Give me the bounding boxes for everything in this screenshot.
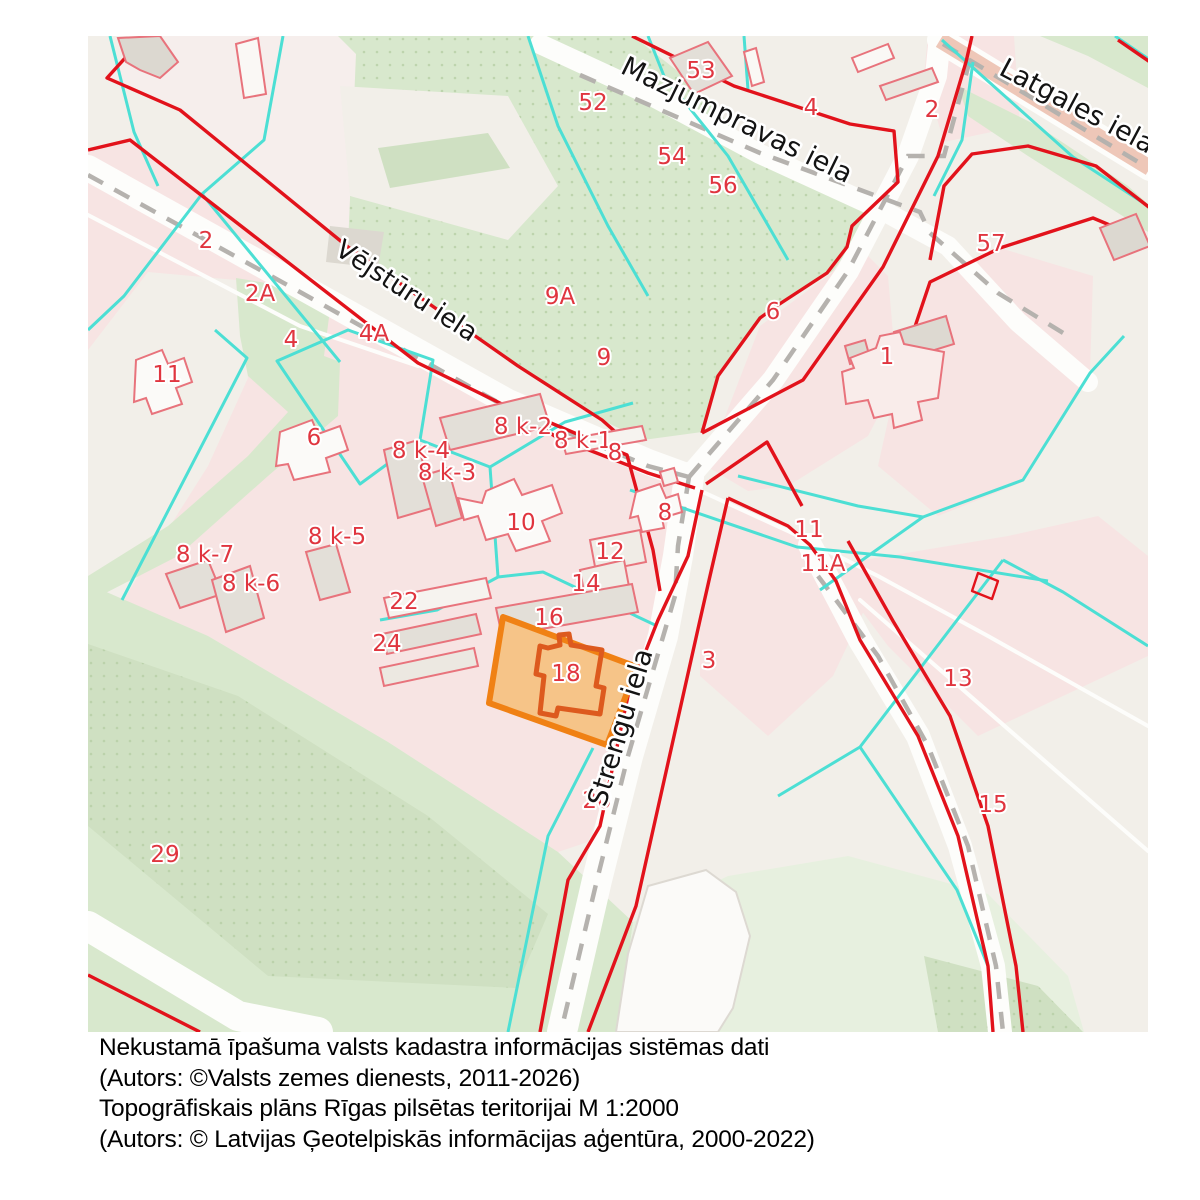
parcel-label-11: 11 bbox=[152, 362, 181, 388]
parcel-label-8k-5: 8 k-5 bbox=[308, 524, 366, 550]
parcel-label-11A: 11A bbox=[800, 551, 845, 577]
parcel-label-8k-6: 8 k-6 bbox=[222, 571, 280, 597]
cadastre-map: 53525456425722A44A119A96618 k-28 k-188 k… bbox=[88, 36, 1148, 1032]
parcel-label-52: 52 bbox=[578, 90, 607, 116]
attribution-caption: Nekustamā īpašuma valsts kadastra inform… bbox=[99, 1033, 1149, 1155]
parcel-label-18: 18 bbox=[551, 661, 580, 687]
parcel-label-57: 57 bbox=[976, 231, 1005, 257]
parcel-label-8: 8 bbox=[608, 440, 623, 466]
parcel-label-9: 9 bbox=[597, 345, 612, 371]
parcel-label-11: 11 bbox=[794, 517, 823, 543]
parcel-label-10: 10 bbox=[506, 510, 535, 536]
parcel-label-4: 4 bbox=[804, 95, 819, 121]
parcel-label-14: 14 bbox=[571, 571, 600, 597]
parcel-label-8k-2: 8 k-2 bbox=[494, 414, 552, 440]
parcel-label-8k-1: 8 k-1 bbox=[554, 428, 612, 454]
parcel-label-6: 6 bbox=[766, 299, 781, 325]
map-canvas[interactable]: 53525456425722A44A119A96618 k-28 k-188 k… bbox=[88, 36, 1148, 1032]
parcel-label-24: 24 bbox=[372, 631, 401, 657]
parcel-label-3: 3 bbox=[702, 648, 717, 674]
parcel-label-2: 2 bbox=[925, 97, 940, 123]
parcel-label-8k-7: 8 k-7 bbox=[176, 542, 234, 568]
caption-cadastre-author: (Autors: ©Valsts zemes dienests, 2011-20… bbox=[99, 1064, 1149, 1095]
parcel-label-22: 22 bbox=[389, 589, 418, 615]
parcel-label-13: 13 bbox=[943, 666, 972, 692]
parcel-label-4: 4 bbox=[284, 327, 299, 353]
parcel-label-56: 56 bbox=[708, 173, 737, 199]
parcel-label-8k-3: 8 k-3 bbox=[418, 460, 476, 486]
caption-topo-source: Topogrāfiskais plāns Rīgas pilsētas teri… bbox=[99, 1094, 1149, 1125]
parcel-label-2: 2 bbox=[199, 228, 214, 254]
parcel-label-29: 29 bbox=[150, 842, 179, 868]
parcel-label-1: 1 bbox=[880, 344, 895, 370]
parcel-label-54: 54 bbox=[657, 144, 686, 170]
screenshot-frame: 53525456425722A44A119A96618 k-28 k-188 k… bbox=[0, 0, 1200, 1200]
parcel-label-8: 8 bbox=[658, 500, 673, 526]
parcel-label-2A: 2A bbox=[245, 281, 276, 307]
parcel-label-6: 6 bbox=[307, 425, 322, 451]
parcel-label-12: 12 bbox=[595, 539, 624, 565]
parcel-label-9A: 9A bbox=[545, 284, 576, 310]
parcel-label-4A: 4A bbox=[359, 321, 390, 347]
parcel-label-15: 15 bbox=[978, 792, 1007, 818]
caption-cadastre-source: Nekustamā īpašuma valsts kadastra inform… bbox=[99, 1033, 1149, 1064]
caption-topo-author: (Autors: © Latvijas Ģeotelpiskās informā… bbox=[99, 1125, 1149, 1156]
parcel-label-16: 16 bbox=[534, 605, 563, 631]
